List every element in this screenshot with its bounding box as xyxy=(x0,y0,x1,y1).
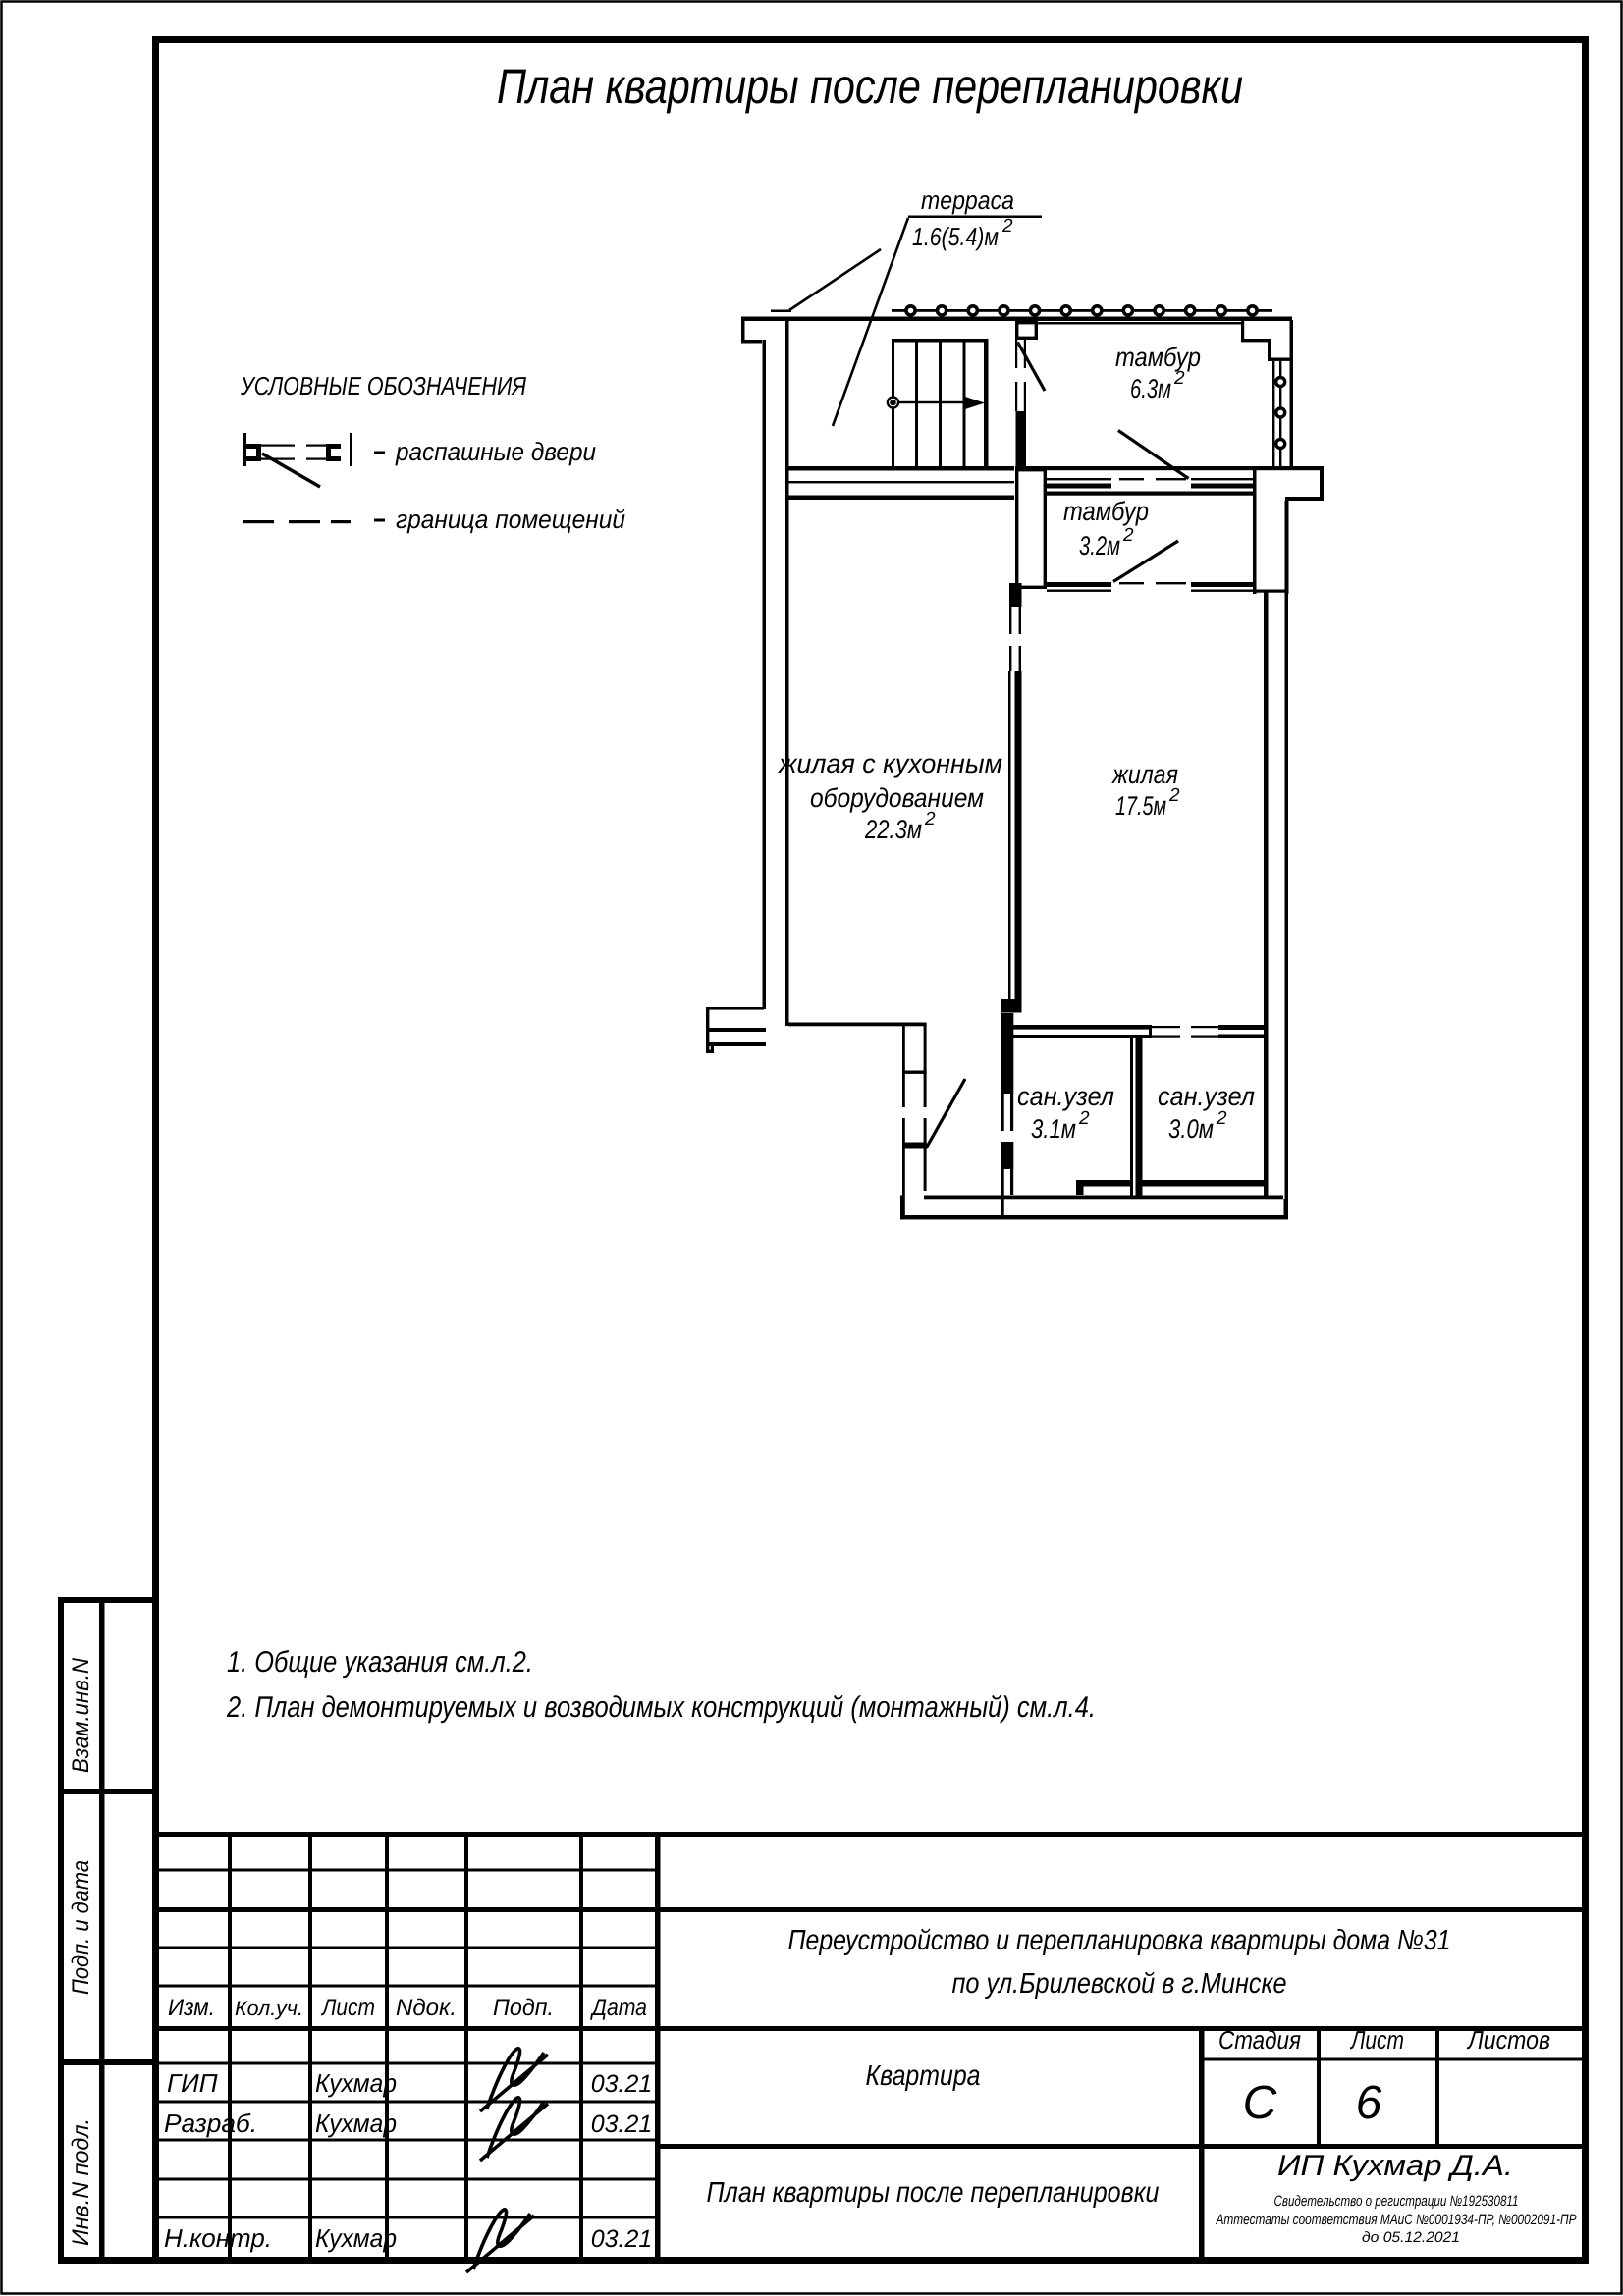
svg-text:03.21: 03.21 xyxy=(591,2225,653,2253)
svg-text:2: 2 xyxy=(1168,785,1180,806)
svg-text:Листов: Листов xyxy=(1466,2025,1550,2055)
svg-text:до 05.12.2021: до 05.12.2021 xyxy=(1362,2229,1460,2246)
svg-text:1. Общие указания см.л.2.: 1. Общие указания см.л.2. xyxy=(227,1646,533,1679)
svg-text:03.21: 03.21 xyxy=(591,2110,653,2138)
svg-text:Аттестаты соответствия МАиС №: Аттестаты соответствия МАиС №0001934-ПР,… xyxy=(1216,2212,1577,2228)
svg-text:Кухмар: Кухмар xyxy=(315,2068,397,2098)
svg-text:граница помещений: граница помещений xyxy=(396,505,625,534)
svg-text:сан.узел: сан.узел xyxy=(1158,1082,1255,1111)
svg-text:Подп. и дата: Подп. и дата xyxy=(68,1860,94,1995)
svg-text:Инв.N подл.: Инв.N подл. xyxy=(68,2118,94,2246)
svg-text:Квартира: Квартира xyxy=(866,2060,981,2092)
svg-text:2: 2 xyxy=(1001,216,1013,237)
svg-text:Лист: Лист xyxy=(320,1995,375,2021)
svg-text:Разраб.: Разраб. xyxy=(164,2109,257,2138)
svg-text:Кухмар: Кухмар xyxy=(315,2223,397,2253)
svg-text:тамбур: тамбур xyxy=(1063,497,1149,526)
svg-text:Nдок.: Nдок. xyxy=(396,1995,457,2021)
svg-text:Подп.: Подп. xyxy=(493,1995,554,2021)
svg-text:Свидетельство о регистрации №: Свидетельство о регистрации №192530811 xyxy=(1274,2193,1519,2210)
svg-text:3.2м: 3.2м xyxy=(1079,531,1120,561)
svg-text:2: 2 xyxy=(1122,525,1134,546)
svg-text:6.3м: 6.3м xyxy=(1130,374,1171,403)
svg-text:Дата: Дата xyxy=(589,1995,647,2021)
svg-text:2: 2 xyxy=(1173,368,1185,389)
svg-text:тамбур: тамбур xyxy=(1115,343,1201,372)
svg-text:терраса: терраса xyxy=(921,186,1014,215)
svg-text:2: 2 xyxy=(924,809,936,829)
svg-text:2. План демонтируемых и возвод: 2. План демонтируемых и возводимых конст… xyxy=(226,1691,1096,1724)
svg-text:22.3м: 22.3м xyxy=(864,815,922,844)
svg-text:Изм.: Изм. xyxy=(168,1995,215,2021)
svg-text:ИП Кухмар Д.А.: ИП Кухмар Д.А. xyxy=(1277,2150,1513,2182)
svg-text:3.0м: 3.0м xyxy=(1168,1114,1214,1144)
svg-text:Стадия: Стадия xyxy=(1218,2025,1301,2055)
svg-text:1.6(5.4)м: 1.6(5.4)м xyxy=(912,222,999,251)
svg-text:сан.узел: сан.узел xyxy=(1017,1082,1114,1111)
svg-text:2: 2 xyxy=(1078,1108,1090,1129)
svg-text:Переустройство и перепланировк: Переустройство и перепланировка квартиры… xyxy=(788,1925,1451,1956)
svg-text:План квартиры после перепланир: План квартиры после перепланировки xyxy=(497,59,1243,114)
svg-text:ГИП: ГИП xyxy=(167,2068,218,2098)
svg-text:2: 2 xyxy=(1216,1108,1227,1129)
svg-text:С: С xyxy=(1243,2077,1277,2129)
svg-text:распашные двери: распашные двери xyxy=(395,437,596,466)
svg-text:Н.контр.: Н.контр. xyxy=(164,2223,272,2253)
svg-text:3.1м: 3.1м xyxy=(1031,1114,1076,1144)
svg-text:План квартиры после перепланир: План квартиры после перепланировки xyxy=(707,2177,1160,2209)
svg-text:оборудованием: оборудованием xyxy=(810,783,984,813)
svg-text:6: 6 xyxy=(1356,2077,1382,2129)
svg-text:03.21: 03.21 xyxy=(591,2070,653,2098)
svg-text:17.5м: 17.5м xyxy=(1115,791,1166,821)
svg-text:Кухмар: Кухмар xyxy=(315,2109,397,2138)
svg-text:по ул.Брилевской в г.Минске: по ул.Брилевской в г.Минске xyxy=(952,1968,1287,2000)
svg-text:Взам.инв.N: Взам.инв.N xyxy=(68,1657,94,1773)
svg-text:Лист: Лист xyxy=(1349,2025,1404,2055)
svg-text:УСЛОВНЫЕ ОБОЗНАЧЕНИЯ: УСЛОВНЫЕ ОБОЗНАЧЕНИЯ xyxy=(240,371,526,400)
svg-text:жилая с кухонным: жилая с кухонным xyxy=(778,749,1002,778)
svg-text:жилая: жилая xyxy=(1111,760,1178,789)
svg-text:Кол.уч.: Кол.уч. xyxy=(235,1998,303,2020)
